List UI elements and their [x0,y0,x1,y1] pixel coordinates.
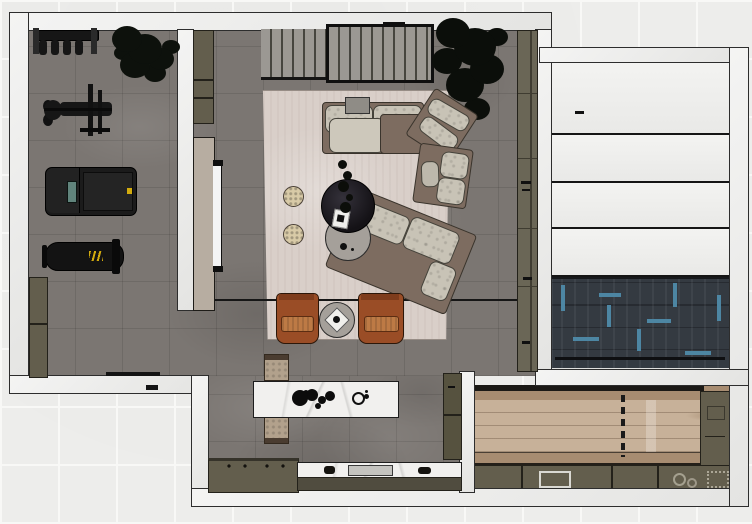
rack-post [91,28,97,54]
cabinet-mark [521,181,531,184]
counter-mark [687,478,697,488]
counter-item [324,466,335,474]
counter-divider [611,466,613,490]
cabinet-divider [30,323,47,325]
sofa-cushion [439,151,470,181]
machine-foot [80,128,110,132]
side-table-candle [333,316,340,323]
counter-mark [707,471,729,488]
garage-room [551,62,730,370]
bench-foot [42,245,47,268]
garage-panel-3 [551,183,730,229]
white-deco-box [332,209,351,230]
pouf [283,224,304,245]
sofa-cushion [435,176,466,206]
bench-upright [112,239,120,274]
pouf [283,186,304,207]
island-trivet [352,392,365,405]
treadmill-logo [127,188,132,194]
table-items [340,243,347,250]
dumbbell [39,40,47,55]
slatted-panel-small [261,29,327,80]
sofa-cushion [419,259,458,303]
armchair-seat [364,316,399,332]
dumbbell [75,40,83,55]
treadmill [45,167,137,216]
door-marking [106,372,160,376]
wall-utility-left [460,372,474,492]
cabinet-divider [518,93,537,94]
sink-outline [539,471,571,488]
wall-rightroom-top [540,48,748,62]
panel-tab [383,22,405,26]
counter-right-utility [700,391,732,467]
dumbbell-rack [33,28,97,58]
counter-mark [673,473,686,486]
cabinet-divider [518,228,537,229]
strength-machine [42,84,114,138]
kitchen-counter-base [297,477,462,491]
tv-mount [213,266,223,272]
kitchen-counter-left [208,458,299,493]
armchair-right [358,293,404,344]
panel-mark [575,111,584,114]
gym-cabinet [29,277,48,378]
island-stool-bottom [264,417,289,444]
garage-panel-1 [551,62,730,135]
deco-box-dot [337,214,345,222]
cabinet-divider [444,414,461,416]
cabinet-divider [194,97,213,99]
counter-divider [657,466,659,490]
tv-mount [213,160,223,166]
counter-mark [707,406,725,420]
island-stool-top [264,354,289,381]
wall-partition-gym-living [178,30,193,310]
dumbbell [51,40,59,55]
wall-entry-vertical [192,376,208,506]
bench-logo [89,251,103,261]
armchair-left [276,293,319,344]
media-panel [193,137,215,311]
tv [213,160,222,272]
sofa-right-section [412,143,474,210]
garage-panel-2 [551,135,730,183]
counter-mark [705,436,725,437]
counter-item [418,467,431,474]
kitchen-island [253,381,399,418]
wall-bottom-gym [10,376,208,393]
cabinet-mark [523,277,532,280]
table-plant [338,160,347,169]
garage-panel-4 [551,229,730,277]
cabinet-handle [448,386,455,388]
island-trivet-small [364,394,369,399]
cabinet-divider [194,79,213,81]
herringbone-floor [551,277,730,368]
kitchen-tall-cabinet [443,373,462,460]
island-decor [292,390,308,406]
kitchen-sink [348,465,393,476]
wall-left-main [10,13,28,393]
stool-back [265,355,288,360]
sofa-pillow [421,161,440,188]
armchair-back [361,294,399,300]
machine-crossbar [44,108,112,111]
armchair-back [279,294,314,300]
floor-plan-canvas [0,0,752,524]
partition-cabinet [193,30,214,124]
cabinet-divider [518,158,537,159]
potted-plant-living [436,18,470,48]
wall-herringbone-bottom [536,370,748,385]
counter-bottom-utility [474,465,732,491]
cabinet-mark [522,189,530,191]
treadmill-belt [83,172,133,211]
wall-right-outer [730,48,748,506]
slatted-panel-large [326,24,434,83]
counter-divider [521,466,523,490]
cabinet-mark [522,341,530,344]
workout-bench [45,242,124,271]
tall-wall-cabinet [517,30,538,372]
sofa-tray [345,97,370,114]
cooktop-burners [223,462,289,470]
dumbbell [63,40,71,55]
cabinet-inner-line [530,31,532,371]
wood-floor [474,400,700,452]
side-table [319,302,355,338]
utility-room [474,385,730,489]
door-handle [146,385,158,390]
cabinet-divider [518,286,537,287]
potted-plant-gym [112,26,142,52]
armchair-seat [281,316,314,332]
treadmill-screen [67,181,77,203]
dashed-divider-line [621,395,625,457]
wall-living-right [536,30,551,370]
herringbone-edge-line [555,357,725,360]
stool-back [265,438,288,443]
sofa-chaise-pad [329,118,385,153]
